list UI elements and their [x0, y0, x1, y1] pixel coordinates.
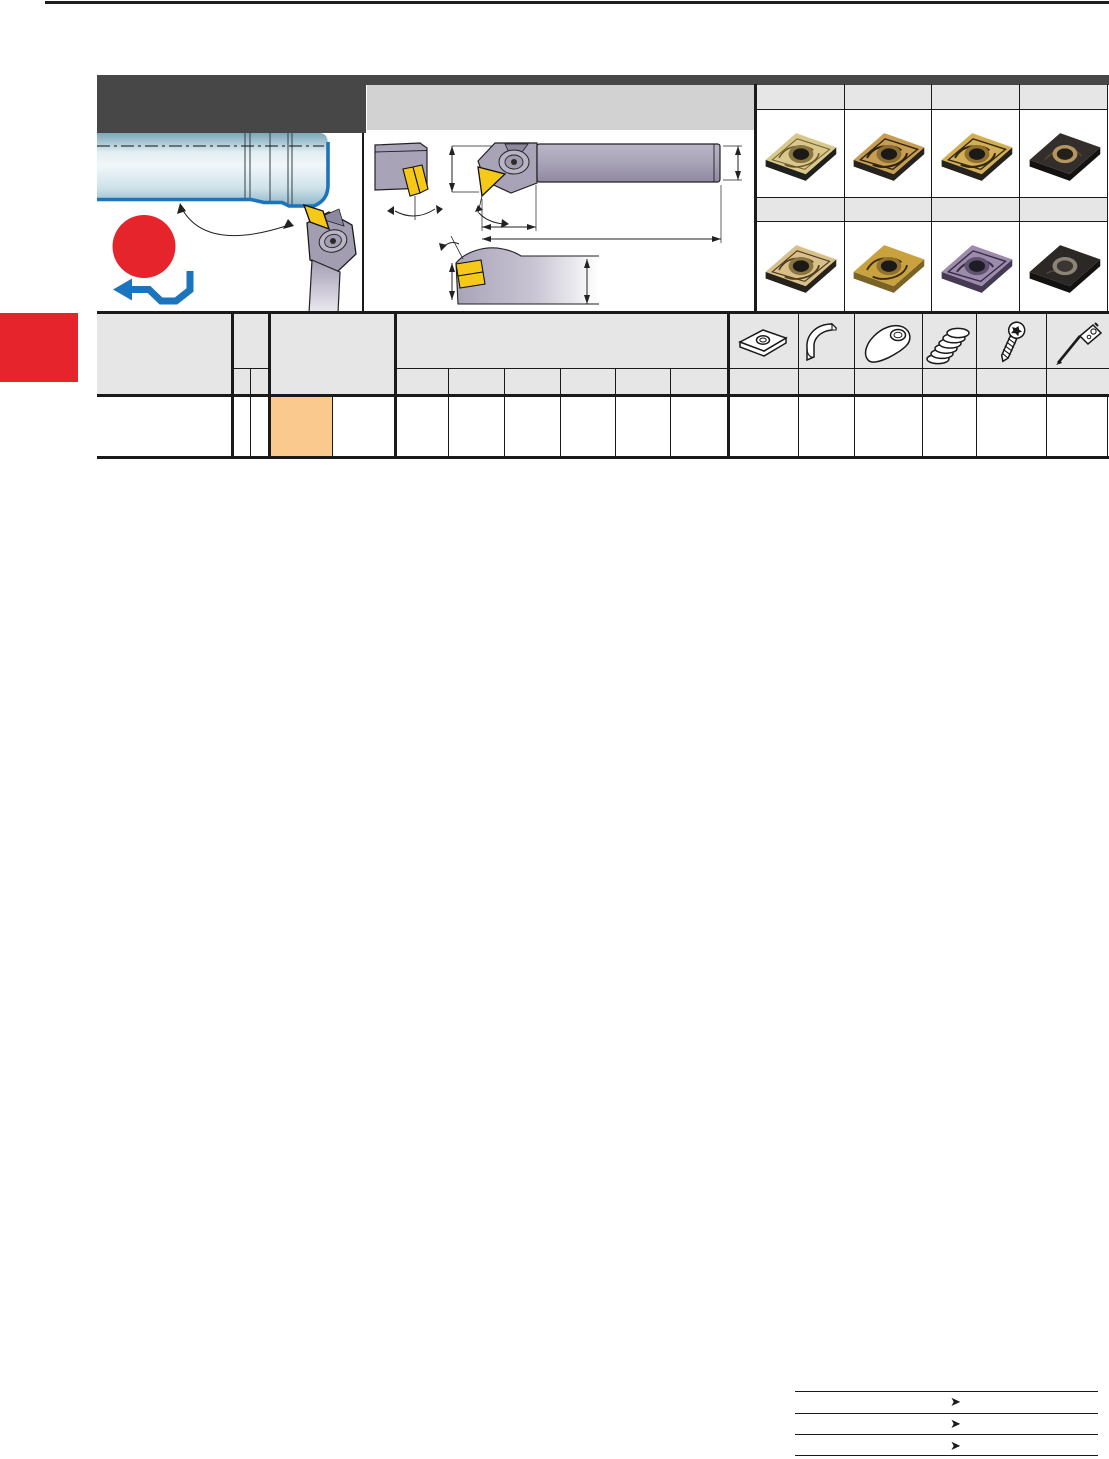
insert-photo-black-tan [1022, 120, 1106, 192]
top-view [439, 236, 599, 304]
screw-icon [983, 320, 1039, 366]
toolholder-dimension-drawings [367, 129, 757, 314]
holder-drawing-title-bar [367, 85, 754, 130]
insert-photo-violet [934, 232, 1018, 304]
clamp-icon [860, 320, 916, 366]
insert-photo-bronze [846, 120, 930, 192]
table-grid-v [560, 369, 561, 456]
table-grid-v [670, 369, 671, 456]
side-view [449, 143, 742, 243]
insert-photo-black-2 [1022, 232, 1106, 304]
catalog-page: ➤ ➤ ➤ [0, 0, 1109, 1459]
table-grid-v [250, 369, 251, 456]
table-grid-v [854, 314, 855, 456]
panel-divider [362, 133, 364, 311]
table-border-v [231, 314, 234, 456]
grid-line-v [1107, 84, 1109, 456]
grid-line-h [754, 197, 1108, 198]
feed-icon-circle [113, 215, 176, 278]
table-grid-v [504, 369, 505, 456]
table-border-v [727, 314, 730, 456]
page-top-rule [45, 1, 1109, 4]
swing-arc [181, 207, 289, 236]
insert-photo-gold [934, 120, 1018, 192]
shim-sleeve-icon [798, 320, 854, 366]
table-border-v [394, 314, 397, 456]
table-grid-v [332, 397, 333, 456]
shim-icon [735, 320, 791, 366]
insert-photo-tan [758, 120, 842, 192]
spring-icon [921, 320, 977, 366]
footer-reference-arrow: ➤ [950, 1439, 961, 1452]
chapter-index-tab [0, 313, 78, 382]
table-grid-v [448, 369, 449, 456]
footer-rule [795, 1455, 1098, 1457]
table-grid-v [798, 314, 799, 456]
table-grid-v [615, 369, 616, 456]
footer-rule [795, 1413, 1098, 1415]
footer-rule [795, 1391, 1098, 1393]
table-border-h [97, 456, 1109, 459]
footer-rule [795, 1434, 1098, 1436]
highlighted-order-cell [270, 397, 332, 457]
table-grid-v [976, 314, 977, 456]
table-border-h [97, 311, 1109, 314]
grid-line-h [754, 109, 1108, 110]
footer-reference-arrow: ➤ [950, 1417, 961, 1430]
end-view [375, 143, 443, 220]
insert-photo-gold-2 [846, 232, 930, 304]
table-subheader-h [394, 368, 1109, 369]
table-border-v [268, 314, 271, 456]
grid-line-h [754, 221, 1108, 222]
table-grid-v [922, 314, 923, 456]
table-grid-v [1046, 314, 1047, 456]
insert-photo-tan-2 [758, 232, 842, 304]
wrench-icon [1049, 320, 1105, 366]
workpiece-section [97, 133, 328, 206]
footer-reference-arrow: ➤ [950, 1395, 961, 1408]
series-title-block [97, 75, 366, 133]
external-profiling-operation-diagram [97, 129, 365, 314]
